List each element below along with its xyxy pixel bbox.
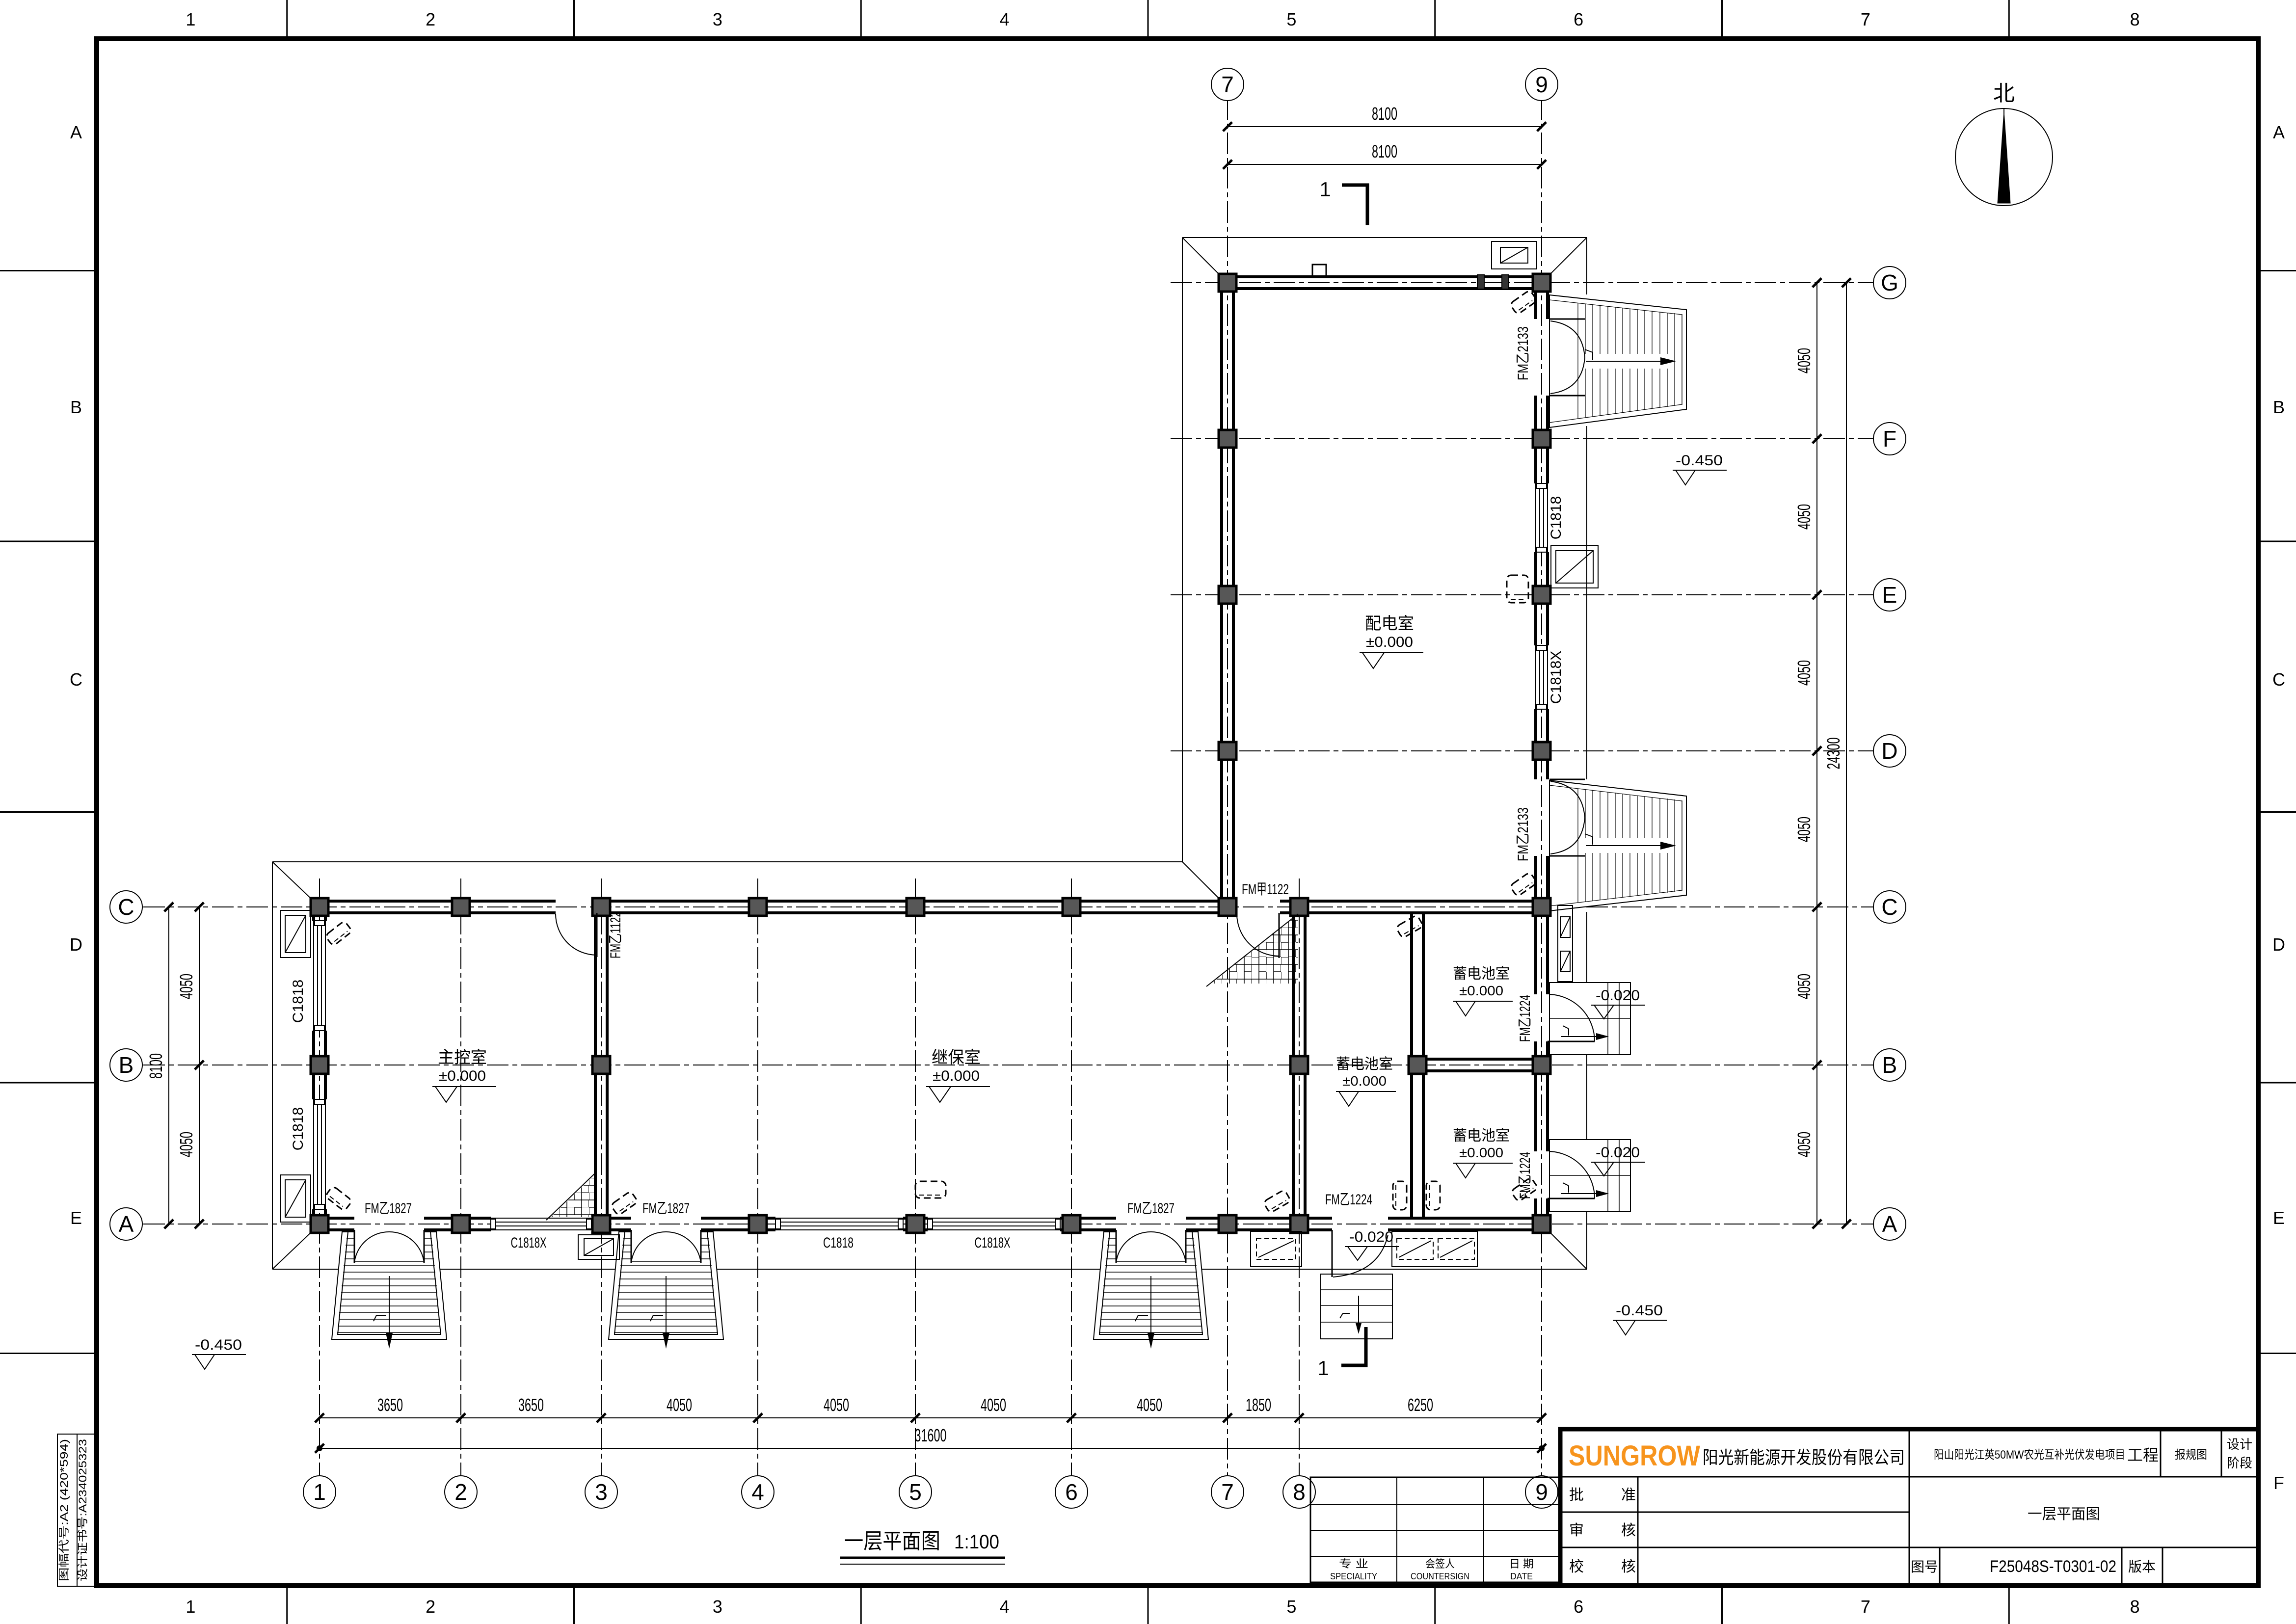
svg-text:±0.000: ±0.000 bbox=[933, 1068, 980, 1084]
svg-text:1: 1 bbox=[1317, 1357, 1329, 1380]
svg-text:E: E bbox=[70, 1208, 82, 1228]
svg-text:图幅代号:A2 (420*594): 图幅代号:A2 (420*594) bbox=[58, 1439, 70, 1581]
svg-text:FM乙1224: FM乙1224 bbox=[1325, 1192, 1372, 1208]
svg-text:±0.000: ±0.000 bbox=[439, 1068, 486, 1084]
svg-text:1: 1 bbox=[313, 1479, 326, 1505]
svg-text:9: 9 bbox=[1535, 72, 1548, 97]
svg-text:配电室: 配电室 bbox=[1365, 614, 1414, 633]
svg-text:C: C bbox=[1881, 894, 1897, 920]
svg-text:FM乙2133: FM乙2133 bbox=[1515, 807, 1531, 861]
svg-text:8: 8 bbox=[2130, 9, 2140, 29]
svg-text:审: 审 bbox=[1569, 1522, 1584, 1539]
svg-text:一层平面图: 一层平面图 bbox=[2028, 1506, 2100, 1522]
svg-text:FM乙1224: FM乙1224 bbox=[1517, 1152, 1533, 1199]
svg-text:6250: 6250 bbox=[1408, 1395, 1433, 1415]
svg-text:专 业: 专 业 bbox=[1339, 1558, 1368, 1570]
svg-text:F: F bbox=[1883, 426, 1896, 452]
svg-text:4050: 4050 bbox=[981, 1395, 1006, 1415]
svg-text:D: D bbox=[1881, 738, 1897, 764]
svg-text:F25048S-T0301-02: F25048S-T0301-02 bbox=[1990, 1557, 2116, 1576]
svg-text:北: 北 bbox=[1993, 81, 2015, 106]
svg-text:蓄电池室: 蓄电池室 bbox=[1453, 1128, 1510, 1144]
svg-text:设计: 设计 bbox=[2227, 1437, 2252, 1452]
svg-text:A: A bbox=[1882, 1211, 1897, 1237]
svg-text:2: 2 bbox=[426, 9, 435, 29]
svg-text:C1818: C1818 bbox=[1548, 496, 1564, 539]
svg-text:6: 6 bbox=[1574, 9, 1583, 29]
svg-text:8100: 8100 bbox=[146, 1053, 166, 1079]
svg-text:4050: 4050 bbox=[1794, 1132, 1814, 1157]
svg-text:4050: 4050 bbox=[1794, 974, 1814, 999]
svg-text:B: B bbox=[119, 1052, 134, 1078]
svg-text:A: A bbox=[119, 1211, 134, 1237]
svg-text:蓄电池室: 蓄电池室 bbox=[1453, 966, 1510, 982]
svg-text:C1818: C1818 bbox=[290, 1107, 306, 1150]
svg-text:B: B bbox=[70, 397, 82, 417]
svg-text:31600: 31600 bbox=[915, 1425, 947, 1445]
svg-text:设计证书号:A234025323: 设计证书号:A234025323 bbox=[77, 1439, 89, 1581]
svg-text:蓄电池室: 蓄电池室 bbox=[1336, 1056, 1393, 1072]
svg-text:7: 7 bbox=[1861, 9, 1870, 29]
svg-text:FM乙1827: FM乙1827 bbox=[642, 1200, 690, 1217]
svg-text:7: 7 bbox=[1221, 1479, 1234, 1505]
svg-text:核: 核 bbox=[1621, 1522, 1636, 1539]
svg-text:C: C bbox=[70, 669, 82, 690]
svg-text:SPECIALITY: SPECIALITY bbox=[1330, 1571, 1377, 1581]
svg-text:日 期: 日 期 bbox=[1509, 1558, 1534, 1570]
svg-text:2: 2 bbox=[454, 1479, 467, 1505]
svg-text:4: 4 bbox=[751, 1479, 764, 1505]
svg-text:FM乙2133: FM乙2133 bbox=[1515, 326, 1531, 380]
svg-text:阳光新能源开发股份有限公司: 阳光新能源开发股份有限公司 bbox=[1703, 1447, 1905, 1467]
svg-text:E: E bbox=[1882, 582, 1897, 608]
svg-text:3650: 3650 bbox=[377, 1395, 403, 1415]
svg-text:图号: 图号 bbox=[1911, 1559, 1938, 1574]
svg-text:C1818X: C1818X bbox=[975, 1235, 1011, 1251]
svg-text:D: D bbox=[2272, 934, 2285, 955]
svg-text:准: 准 bbox=[1621, 1487, 1636, 1503]
svg-text:8100: 8100 bbox=[1372, 141, 1397, 161]
svg-text:1: 1 bbox=[1319, 178, 1331, 201]
svg-text:工程: 工程 bbox=[2127, 1446, 2159, 1464]
svg-text:3650: 3650 bbox=[518, 1395, 544, 1415]
svg-text:D: D bbox=[70, 934, 82, 955]
svg-text:FM乙1224: FM乙1224 bbox=[1517, 995, 1533, 1042]
svg-text:4050: 4050 bbox=[1794, 348, 1814, 373]
svg-text:±0.000: ±0.000 bbox=[1342, 1073, 1387, 1089]
svg-text:阶段: 阶段 bbox=[2227, 1456, 2252, 1470]
svg-text:4050: 4050 bbox=[176, 1132, 196, 1157]
svg-text:1: 1 bbox=[186, 9, 195, 29]
svg-text:B: B bbox=[2273, 397, 2285, 417]
svg-text:4050: 4050 bbox=[667, 1395, 692, 1415]
svg-text:C1818: C1818 bbox=[290, 980, 306, 1023]
svg-text:SUNGROW: SUNGROW bbox=[1569, 1440, 1700, 1472]
svg-text:C1818: C1818 bbox=[823, 1235, 854, 1251]
svg-text:A: A bbox=[70, 122, 82, 142]
svg-text:B: B bbox=[1882, 1052, 1897, 1078]
svg-text:6: 6 bbox=[1065, 1479, 1078, 1505]
svg-text:4050: 4050 bbox=[176, 974, 196, 999]
svg-text:2: 2 bbox=[426, 1597, 435, 1617]
svg-text:1:100: 1:100 bbox=[954, 1531, 999, 1553]
svg-text:6: 6 bbox=[1574, 1597, 1583, 1617]
svg-text:1: 1 bbox=[186, 1597, 195, 1617]
svg-text:-0.450: -0.450 bbox=[1616, 1303, 1663, 1319]
svg-text:3: 3 bbox=[713, 1597, 722, 1617]
svg-text:校: 校 bbox=[1569, 1559, 1584, 1575]
svg-text:-0.020: -0.020 bbox=[1596, 1145, 1640, 1161]
svg-text:±0.000: ±0.000 bbox=[1459, 983, 1503, 998]
svg-text:4050: 4050 bbox=[1794, 817, 1814, 842]
svg-text:FM乙1827: FM乙1827 bbox=[365, 1200, 412, 1217]
svg-text:7: 7 bbox=[1221, 72, 1234, 97]
svg-text:批: 批 bbox=[1569, 1487, 1584, 1503]
svg-text:±0.000: ±0.000 bbox=[1366, 634, 1413, 650]
svg-text:-0.450: -0.450 bbox=[195, 1337, 242, 1353]
svg-text:4050: 4050 bbox=[1137, 1395, 1162, 1415]
svg-text:3: 3 bbox=[713, 9, 722, 29]
svg-text:版本: 版本 bbox=[2128, 1559, 2156, 1574]
svg-text:报规图: 报规图 bbox=[2175, 1448, 2207, 1462]
svg-text:24300: 24300 bbox=[1823, 738, 1843, 770]
svg-text:-0.450: -0.450 bbox=[1676, 453, 1723, 469]
svg-text:1850: 1850 bbox=[1246, 1395, 1271, 1415]
svg-text:会签人: 会签人 bbox=[1425, 1558, 1455, 1570]
svg-text:-0.020: -0.020 bbox=[1596, 987, 1640, 1004]
svg-text:-0.020: -0.020 bbox=[1349, 1229, 1393, 1245]
svg-text:C: C bbox=[2272, 669, 2285, 690]
svg-text:5: 5 bbox=[1286, 9, 1296, 29]
svg-text:A: A bbox=[2273, 122, 2285, 142]
svg-text:C: C bbox=[118, 894, 134, 920]
svg-text:4: 4 bbox=[1000, 1597, 1010, 1617]
svg-text:F: F bbox=[2273, 1473, 2284, 1493]
svg-text:FM甲1122: FM甲1122 bbox=[1242, 881, 1289, 898]
svg-text:4050: 4050 bbox=[1794, 660, 1814, 686]
svg-text:E: E bbox=[2273, 1208, 2285, 1228]
svg-text:继保室: 继保室 bbox=[932, 1048, 981, 1067]
svg-text:8100: 8100 bbox=[1372, 104, 1397, 124]
svg-text:8: 8 bbox=[2130, 1597, 2140, 1617]
svg-text:一层平面图: 一层平面图 bbox=[844, 1529, 940, 1553]
svg-text:FM乙1827: FM乙1827 bbox=[1127, 1200, 1175, 1217]
svg-text:G: G bbox=[1881, 270, 1898, 295]
svg-text:COUNTERSIGN: COUNTERSIGN bbox=[1411, 1571, 1469, 1581]
svg-text:C1818X: C1818X bbox=[511, 1235, 547, 1251]
svg-text:主控室: 主控室 bbox=[438, 1048, 487, 1067]
svg-text:阳山阳光江英50MW农光互补光伏发电项目: 阳山阳光江英50MW农光互补光伏发电项目 bbox=[1934, 1448, 2125, 1462]
svg-text:4050: 4050 bbox=[824, 1395, 849, 1415]
svg-text:7: 7 bbox=[1861, 1597, 1870, 1617]
svg-text:8: 8 bbox=[1293, 1479, 1306, 1505]
svg-text:4: 4 bbox=[1000, 9, 1010, 29]
svg-text:3: 3 bbox=[595, 1479, 608, 1505]
svg-text:5: 5 bbox=[1286, 1597, 1296, 1617]
svg-text:9: 9 bbox=[1535, 1479, 1548, 1505]
svg-text:4050: 4050 bbox=[1794, 504, 1814, 530]
svg-text:5: 5 bbox=[909, 1479, 922, 1505]
svg-text:FM乙1122: FM乙1122 bbox=[608, 911, 624, 958]
svg-text:C1818X: C1818X bbox=[1548, 651, 1564, 704]
svg-text:±0.000: ±0.000 bbox=[1459, 1145, 1503, 1160]
svg-text:核: 核 bbox=[1621, 1559, 1636, 1575]
svg-text:DATE: DATE bbox=[1510, 1571, 1533, 1581]
